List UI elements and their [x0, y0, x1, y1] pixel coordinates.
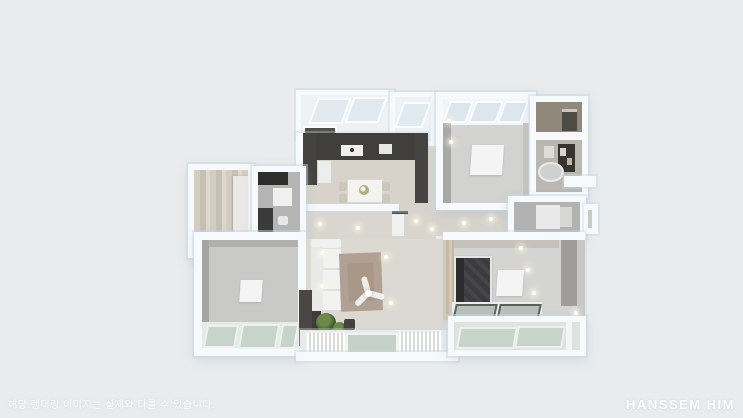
dining-chair: [382, 182, 390, 191]
ceiling-light: [489, 217, 493, 221]
white-floor-rug: [239, 280, 263, 302]
exterior-wall-notch: [564, 176, 596, 187]
interior-wall: [577, 240, 585, 324]
sofa-back: [311, 247, 323, 311]
room-pantry: [252, 166, 306, 240]
dining-chair: [339, 194, 347, 203]
utility-room-floor: [536, 102, 582, 132]
ceiling-light: [356, 226, 360, 230]
render-canvas: 해당 렌더링 이미지는 실제와 다를 수 있습니다. HANSSEM HIM: [0, 0, 743, 418]
balcony-divider: [566, 322, 572, 350]
interior-wall: [202, 240, 209, 322]
window-band: [443, 99, 529, 125]
kitchen-counter-top: [303, 133, 428, 160]
refrigerator: [318, 161, 331, 183]
interior-wall: [202, 240, 298, 247]
interior-wall: [454, 240, 559, 248]
interior-wall: [303, 204, 399, 211]
balcony-master: [448, 316, 586, 356]
bathtub: [538, 162, 564, 182]
window-glass: [278, 324, 299, 349]
ceiling-light: [532, 291, 536, 295]
ceiling-light: [320, 251, 324, 255]
cooktop: [341, 145, 363, 156]
closet: [561, 240, 577, 306]
ceiling-light: [318, 222, 322, 226]
window-glass: [203, 325, 239, 348]
bathroom-vanity: [544, 146, 554, 158]
interior-wall: [523, 123, 529, 203]
balcony-glass: [456, 327, 518, 349]
planter-dark: [344, 319, 355, 330]
ceiling-light: [574, 311, 578, 315]
entry-closet: [233, 176, 248, 232]
wall-divider: [536, 132, 582, 140]
white-floor-rug: [470, 145, 504, 175]
brand-watermark: HANSSEM HIM: [626, 397, 735, 412]
fan-hub: [365, 290, 372, 297]
ceiling-light: [526, 268, 530, 272]
white-floor-rug: [496, 270, 524, 296]
desk-dark: [258, 208, 273, 232]
door-panel: [392, 214, 404, 236]
shower-fixture: [536, 205, 560, 229]
ceiling-light: [389, 301, 393, 305]
balcony-glass: [514, 326, 566, 348]
ceiling-light: [519, 246, 523, 250]
ceiling-light: [384, 255, 388, 259]
ceiling-light: [462, 221, 466, 225]
room-bedroom-top-right: [436, 92, 536, 210]
window-slit: [588, 210, 592, 228]
kitchen-wall-dark: [415, 133, 428, 203]
window-glass: [238, 324, 280, 349]
exterior-wall: [296, 352, 458, 361]
interior-wall: [443, 123, 451, 203]
ceiling-light: [320, 284, 324, 288]
ceiling-light: [414, 219, 418, 223]
render-disclaimer-text: 해당 렌더링 이미지는 실제와 다를 수 있습니다.: [8, 396, 215, 411]
room-bedroom-left: [194, 232, 306, 356]
floorplan-viewport[interactable]: [0, 0, 743, 418]
window-strip: [202, 322, 298, 348]
dining-chair: [382, 194, 390, 203]
skylight-window: [394, 102, 431, 128]
room-kitchen-dining: [296, 133, 428, 211]
washing-machine: [562, 109, 577, 131]
dark-shelf-unit: [258, 172, 288, 185]
toilet-fixture: [560, 207, 572, 227]
bed-duvet: [464, 258, 490, 308]
room-master-bedroom: [443, 232, 585, 324]
stool: [278, 216, 288, 225]
bed-pillows: [456, 258, 464, 308]
ceiling-light: [449, 140, 453, 144]
ceiling-light: [430, 227, 434, 231]
ceiling-fan: [352, 277, 384, 309]
white-floor-rug: [273, 188, 292, 206]
exterior-wall-bump: [584, 204, 598, 234]
ceiling-light: [447, 119, 451, 123]
sink: [379, 144, 392, 154]
dining-chair: [339, 182, 347, 191]
table-centerpiece: [359, 185, 369, 195]
skylight-window: [344, 97, 387, 123]
